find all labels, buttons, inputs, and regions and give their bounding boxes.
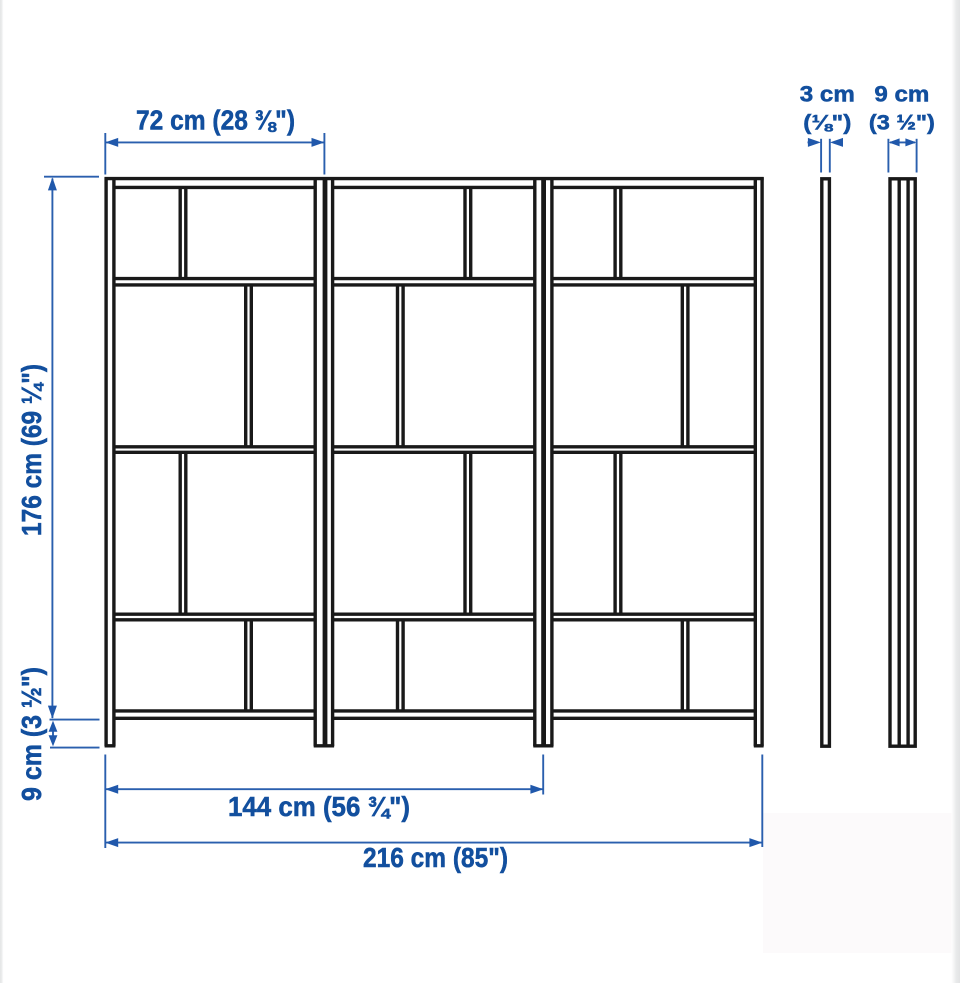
svg-text:216 cm (85"): 216 cm (85") [363,842,508,873]
svg-text:72 cm (28 ⅜"): 72 cm (28 ⅜") [136,105,295,136]
svg-text:9 cm (3 ½"): 9 cm (3 ½") [16,667,47,801]
svg-text:144 cm (56 ¾"): 144 cm (56 ¾") [228,791,410,822]
svg-text:9 cm: 9 cm [874,82,929,107]
svg-text:3 cm: 3 cm [800,82,855,107]
svg-text:176 cm (69 ¼"): 176 cm (69 ¼") [16,364,47,536]
svg-text:(3 ½"): (3 ½") [869,111,935,135]
svg-text:(⅛"): (⅛") [803,111,851,135]
